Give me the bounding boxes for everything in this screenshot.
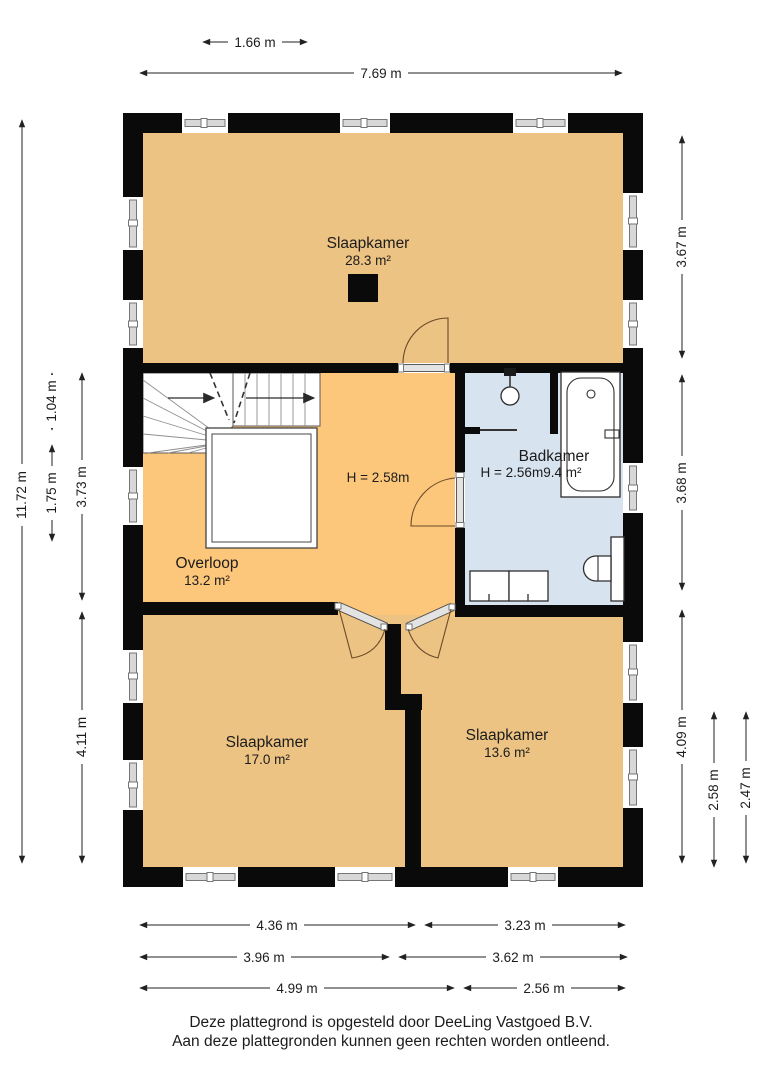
window	[183, 867, 238, 887]
svg-text:2.56 m: 2.56 m	[523, 981, 564, 996]
svg-text:7.69 m: 7.69 m	[360, 66, 401, 81]
room-area-landing: 13.2 m²	[184, 573, 230, 588]
dimension-line: 3.62 m	[399, 949, 627, 965]
room-area-bathroom: 9.4 m²	[543, 465, 582, 480]
window	[123, 197, 143, 250]
footer-disclaimer: Deze plattegrond is opgesteld door DeeLi…	[172, 1014, 610, 1050]
wall-bedroom-divider-upper	[385, 624, 401, 702]
dimension-line: 4.09 m	[674, 610, 690, 863]
window	[123, 760, 143, 810]
svg-text:4.09 m: 4.09 m	[674, 716, 689, 757]
svg-text:4.99 m: 4.99 m	[276, 981, 317, 996]
window	[623, 300, 643, 348]
dimension-line: 3.23 m	[425, 917, 625, 933]
room-label-bedroom-left: Slaapkamer	[226, 734, 309, 751]
dimension-line: 2.56 m	[464, 980, 625, 996]
room-area-bedroom-right: 13.6 m²	[484, 745, 530, 760]
ceiling-height-bathroom: H = 2.56m	[481, 465, 544, 480]
dimension-line: 7.69 m	[140, 65, 622, 81]
dimension-line: 3.68 m	[674, 375, 690, 590]
svg-text:11.72 m: 11.72 m	[14, 471, 29, 519]
svg-text:2.58 m: 2.58 m	[706, 769, 721, 810]
dimension-line: 3.96 m	[140, 949, 389, 965]
svg-text:3.96 m: 3.96 m	[243, 950, 284, 965]
stair-flight	[233, 373, 320, 426]
window	[123, 467, 143, 525]
svg-text:3.73 m: 3.73 m	[74, 466, 89, 507]
svg-text:3.68 m: 3.68 m	[674, 462, 689, 503]
dimension-line: 2.58 m	[706, 712, 722, 867]
floorplan-drawing: Slaapkamer 28.3 m² H = 2.58m Overloop 13…	[0, 0, 764, 1080]
dimension-line: 1.75 m	[44, 445, 60, 541]
wall-shower-partition	[550, 368, 558, 434]
dimension-line: 1.04 m	[44, 373, 60, 430]
room-label-bedroom-top: Slaapkamer	[327, 235, 410, 252]
room-label-landing: Overloop	[176, 555, 239, 572]
window	[623, 642, 643, 703]
wall-landing-bottom	[123, 602, 338, 615]
wall-bathroom-bottom	[455, 605, 643, 617]
window	[513, 113, 568, 133]
svg-text:3.62 m: 3.62 m	[492, 950, 533, 965]
washbasin-icon	[470, 571, 548, 601]
window	[182, 113, 228, 133]
svg-text:1.04 m: 1.04 m	[44, 380, 59, 421]
dimension-line: 4.36 m	[140, 917, 415, 933]
chimney	[348, 274, 378, 302]
room-area-bedroom-left: 17.0 m²	[244, 752, 290, 767]
window	[123, 300, 143, 348]
stair-void	[206, 428, 317, 548]
dimension-line: 4.11 m	[74, 612, 90, 863]
dimension-line: 1.66 m	[203, 34, 307, 50]
footer-line1: Deze plattegrond is opgesteld door DeeLi…	[189, 1014, 592, 1031]
svg-text:3.23 m: 3.23 m	[504, 918, 545, 933]
window	[508, 867, 558, 887]
window	[623, 747, 643, 808]
window	[340, 113, 390, 133]
svg-text:4.36 m: 4.36 m	[256, 918, 297, 933]
dimension-line: 11.72 m	[14, 120, 30, 863]
dimension-line: 2.47 m	[738, 712, 754, 863]
footer-line2: Aan deze plattegronden kunnen geen recht…	[172, 1033, 610, 1050]
window	[123, 650, 143, 703]
svg-text:3.67 m: 3.67 m	[674, 226, 689, 267]
dimension-line: 3.67 m	[674, 136, 690, 358]
wall-bedroom-divider-lower	[405, 702, 421, 867]
svg-text:1.66 m: 1.66 m	[234, 35, 275, 50]
room-area-bedroom-top: 28.3 m²	[345, 253, 391, 268]
wall-shower-stub	[465, 427, 480, 434]
window	[623, 193, 643, 250]
svg-text:2.47 m: 2.47 m	[738, 767, 753, 808]
svg-text:1.75 m: 1.75 m	[44, 472, 59, 513]
room-label-bathroom: Badkamer	[519, 448, 590, 465]
svg-text:4.11 m: 4.11 m	[74, 717, 89, 757]
dimension-line: 4.99 m	[140, 980, 454, 996]
room-label-bedroom-right: Slaapkamer	[466, 727, 549, 744]
room-info-bathroom: H = 2.56m9.4 m²	[481, 465, 582, 480]
window	[335, 867, 395, 887]
ceiling-height-landing: H = 2.58m	[347, 470, 410, 485]
dimension-line: 3.73 m	[74, 373, 90, 600]
window	[623, 463, 643, 513]
floorplan-page: Slaapkamer 28.3 m² H = 2.58m Overloop 13…	[0, 0, 764, 1080]
